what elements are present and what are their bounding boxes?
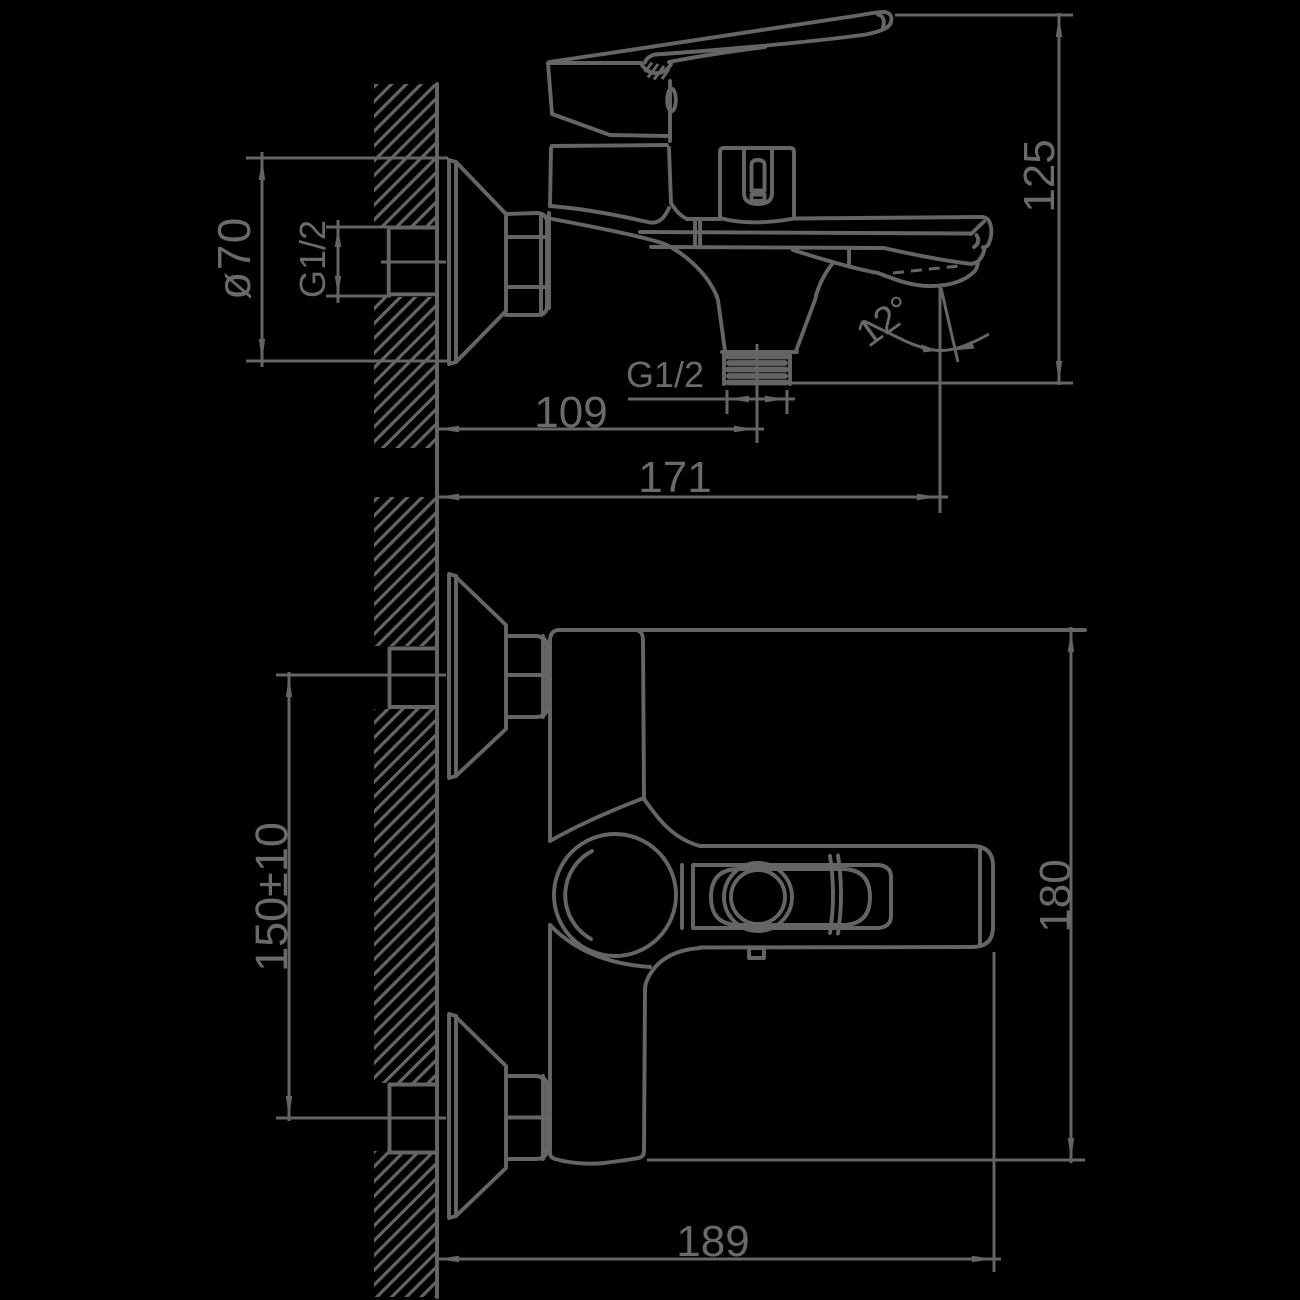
svg-text:189: 189 [676,1217,749,1266]
svg-text:G1/2: G1/2 [626,354,704,395]
svg-text:150±10: 150±10 [246,822,297,972]
svg-text:180: 180 [1031,859,1080,932]
svg-text:ø70: ø70 [208,216,260,300]
svg-text:G1/2: G1/2 [292,220,333,298]
svg-text:109: 109 [534,388,607,437]
svg-text:171: 171 [638,453,711,502]
svg-text:125: 125 [1015,139,1064,212]
